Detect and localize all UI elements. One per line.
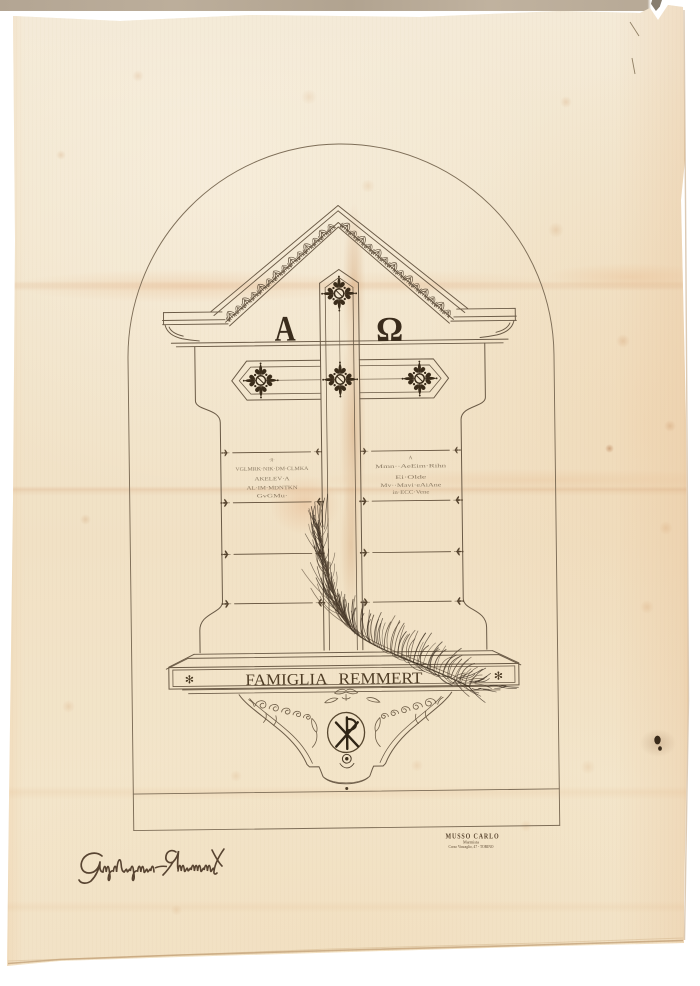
svg-text:Ei·Olde: Ei·Olde bbox=[395, 474, 427, 480]
svg-text:✻: ✻ bbox=[494, 671, 503, 683]
svg-text:Mv··Mavi·eAiAne: Mv··Mavi·eAiAne bbox=[380, 482, 442, 489]
svg-text:in·ECC·Vene: in·ECC·Vene bbox=[392, 489, 430, 495]
svg-text:FAMIGLIA: FAMIGLIA bbox=[245, 671, 328, 689]
svg-text:AKELEV·A: AKELEV·A bbox=[254, 476, 289, 482]
svg-text:AL·IM·MDNTKN: AL·IM·MDNTKN bbox=[247, 485, 298, 492]
svg-text:A: A bbox=[274, 309, 295, 349]
svg-text:Corso Vinzaglio, 47 - TORINO: Corso Vinzaglio, 47 - TORINO bbox=[449, 844, 494, 850]
svg-text:✻: ✻ bbox=[185, 674, 194, 686]
svg-text:A: A bbox=[409, 456, 413, 461]
svg-text:GvGMu·: GvGMu· bbox=[257, 493, 288, 499]
svg-text:·Я·: ·Я· bbox=[269, 457, 276, 462]
svg-text:Ω: Ω bbox=[376, 310, 403, 349]
svg-text:Mmn··AeEim·Rihn: Mmn··AeEim·Rihn bbox=[375, 463, 447, 470]
svg-text:VGLMRK·NIK·DM·CLMKA: VGLMRK·NIK·DM·CLMKA bbox=[235, 466, 308, 473]
svg-text:REMMERT: REMMERT bbox=[338, 670, 422, 688]
